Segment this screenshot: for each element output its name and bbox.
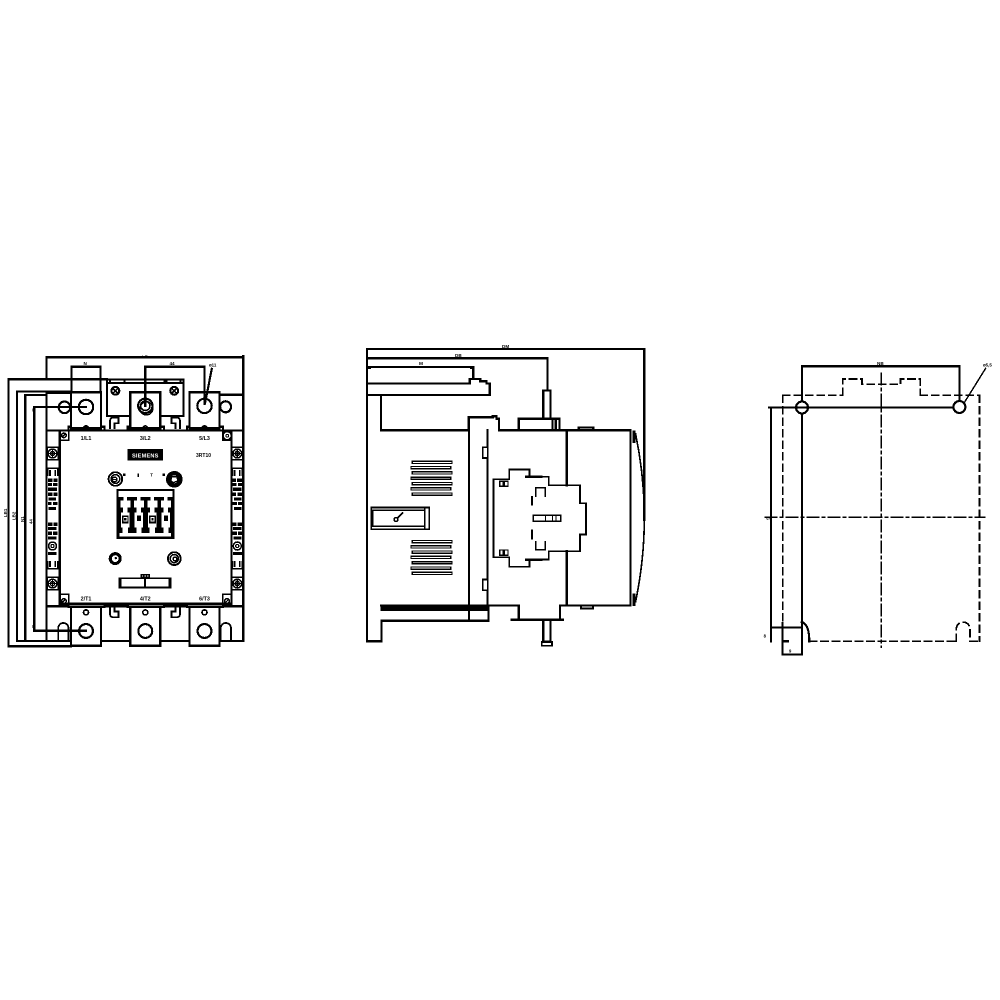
svg-text:6/T3: 6/T3	[199, 597, 210, 603]
svg-text:5/L3: 5/L3	[199, 436, 210, 442]
svg-text:DM: DM	[502, 344, 509, 349]
svg-text:ø5,5: ø5,5	[983, 362, 992, 367]
svg-text:M: M	[419, 361, 423, 367]
svg-text:N1: N1	[20, 516, 25, 522]
svg-text:2/T1: 2/T1	[81, 597, 92, 603]
svg-text:ø11: ø11	[209, 363, 217, 368]
svg-text:44: 44	[29, 519, 34, 524]
svg-text:1/L1: 1/L1	[81, 436, 92, 442]
svg-text:T: T	[150, 473, 153, 478]
svg-text:NB: NB	[877, 361, 884, 366]
svg-text:44: 44	[170, 361, 176, 366]
svg-text:LB1: LB1	[3, 508, 8, 517]
svg-text:4/T2: 4/T2	[140, 597, 151, 603]
svg-text:LB2: LB2	[11, 511, 16, 520]
svg-text:3RT10: 3RT10	[196, 453, 211, 459]
svg-text:DB: DB	[455, 353, 462, 358]
svg-text:LB: LB	[142, 355, 149, 360]
svg-text:SIEMENS: SIEMENS	[132, 453, 159, 459]
svg-text:3/L2: 3/L2	[140, 436, 151, 442]
